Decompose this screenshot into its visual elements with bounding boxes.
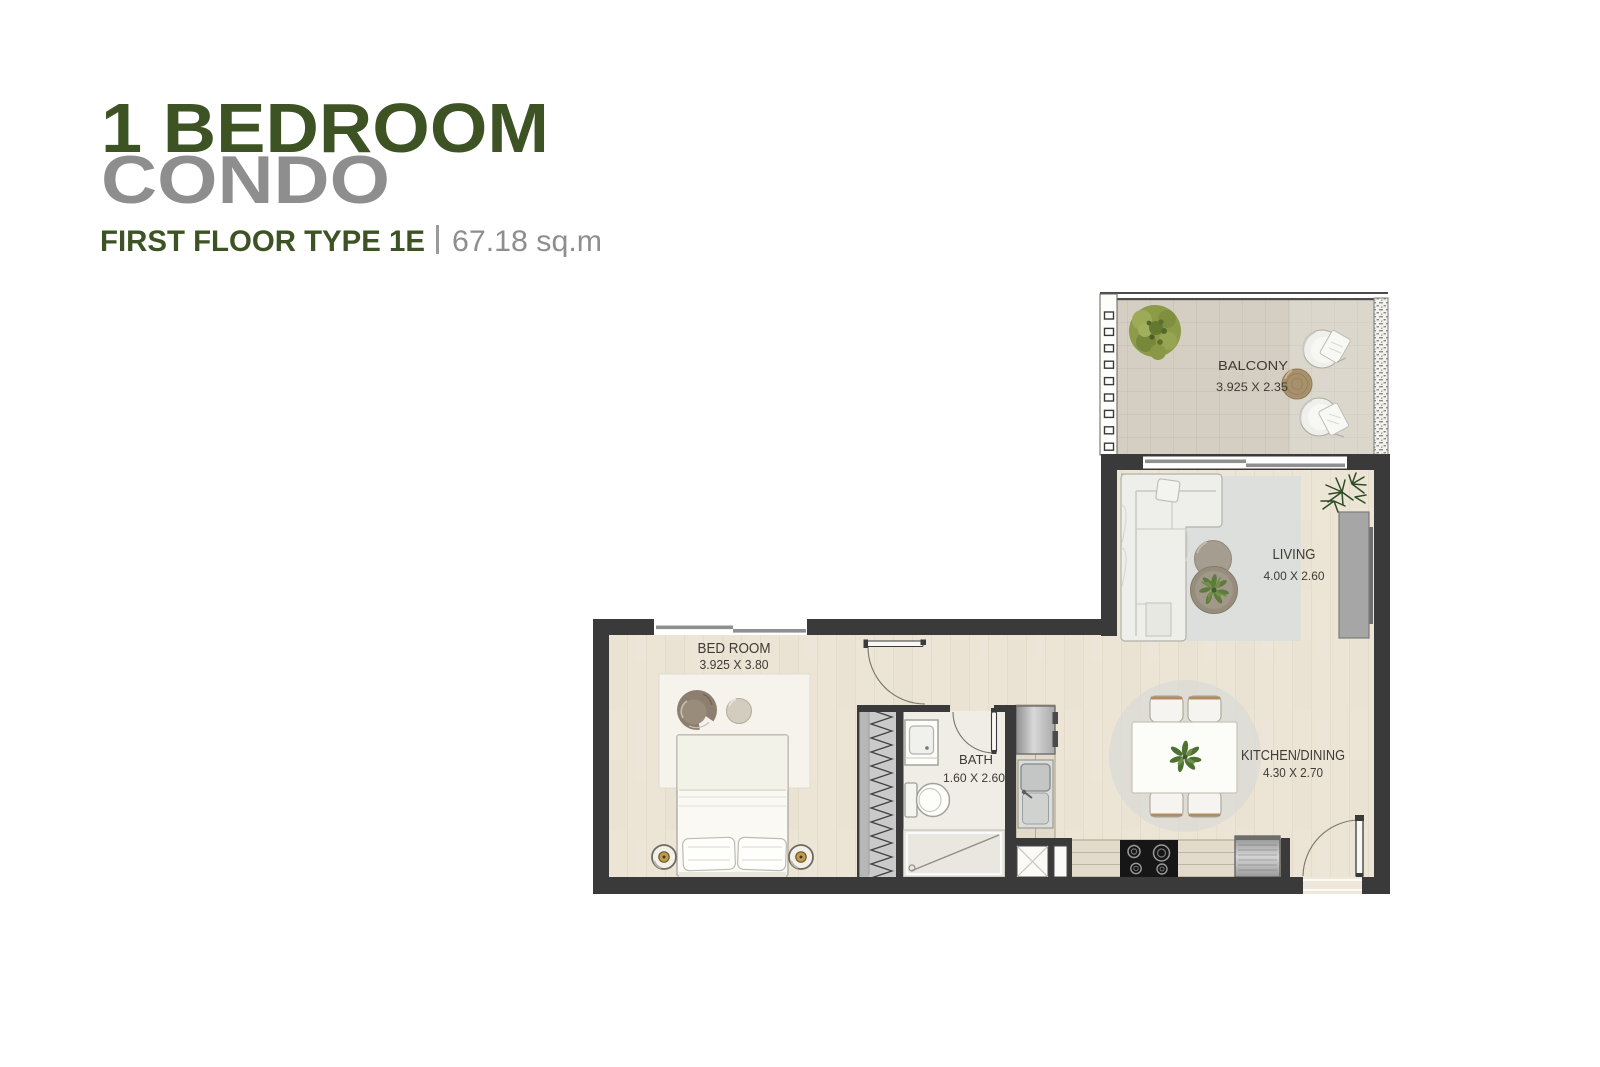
svg-text:BALCONY: BALCONY bbox=[1218, 359, 1289, 373]
svg-text:67.18 sq.m: 67.18 sq.m bbox=[452, 225, 602, 258]
svg-text:4.30 X 2.70: 4.30 X 2.70 bbox=[1263, 766, 1323, 780]
svg-text:1.60 X 2.60: 1.60 X 2.60 bbox=[943, 771, 1005, 785]
svg-text:4.00 X 2.60: 4.00 X 2.60 bbox=[1264, 569, 1325, 583]
svg-text:LIVING: LIVING bbox=[1273, 547, 1316, 563]
svg-text:3.925 X 2.35: 3.925 X 2.35 bbox=[1216, 380, 1288, 394]
svg-text:BED ROOM: BED ROOM bbox=[698, 640, 771, 657]
svg-text:BATH: BATH bbox=[959, 753, 993, 767]
svg-text:KITCHEN/DINING: KITCHEN/DINING bbox=[1241, 747, 1345, 764]
svg-text:CONDO: CONDO bbox=[101, 142, 390, 218]
svg-text:3.925 X 3.80: 3.925 X 3.80 bbox=[700, 658, 769, 672]
svg-text:FIRST FLOOR TYPE 1E: FIRST FLOOR TYPE 1E bbox=[100, 225, 425, 258]
